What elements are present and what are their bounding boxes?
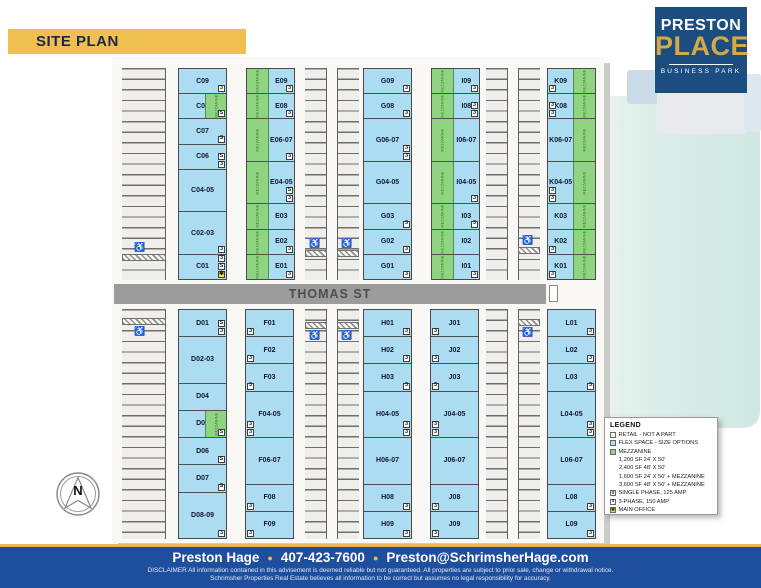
parking-strip (518, 309, 540, 539)
building-F: F013F023F033F04-0533F06-07F083F093 (245, 309, 294, 539)
handicap-icon: ♿ (134, 243, 145, 252)
phase-badge-3: 3 (549, 110, 556, 117)
unit-C09: C093 (179, 69, 226, 94)
phase-badge-S: S (218, 429, 225, 436)
unit-E01: MEZZANINEE013 (247, 255, 294, 279)
phase-badge-3: 3 (247, 383, 254, 390)
unit-L08: L083 (548, 485, 595, 512)
unit-floor: K03 (548, 204, 573, 228)
phase-badge-3: 3 (432, 429, 439, 436)
phase-badge-3: 3 (403, 271, 410, 278)
phase-badge-3: 3 (403, 328, 410, 335)
unit-label: K08 (554, 103, 567, 110)
phase-badge-3: 3 (403, 429, 410, 436)
mezzanine-area: MEZZANINE (432, 94, 454, 118)
unit-floor: E03 (269, 204, 294, 228)
legend-label: 1,600 SF 24' X 50' + MEZZANINE (619, 474, 705, 480)
legend-item: 1,200 SF 24' X 50' (610, 456, 712, 464)
unit-K01: K01MEZZANINE3 (548, 255, 595, 279)
unit-floor: G04-05 (364, 162, 411, 203)
mezzanine-area: MEZZANINE (432, 69, 454, 93)
unit-label: K06-07 (549, 137, 572, 144)
unit-I02: MEZZANINEI02 (432, 230, 479, 255)
unit-I03: MEZZANINEI033 (432, 204, 479, 229)
mezzanine-label: MEZZANINE (255, 70, 259, 93)
unit-H01: H013 (364, 310, 411, 337)
unit-label: I08 (461, 103, 471, 110)
contact-row: Preston Hage ● 407-423-7600 ● Preston@Sc… (0, 550, 761, 565)
unit-F03: F033 (246, 364, 293, 391)
unit-label: K09 (554, 78, 567, 85)
crosswalk-hatch (518, 319, 540, 326)
mezzanine-area: MEZZANINE (247, 69, 269, 93)
unit-floor: F06-07 (246, 438, 293, 483)
mezzanine-area: MEZZANINE (573, 255, 595, 279)
unit-floor: I06-07 (454, 119, 479, 160)
main-office-star: ✱ (218, 271, 225, 278)
mezzanine-area: MEZZANINE (247, 204, 269, 228)
phase-badge-3: 3 (247, 355, 254, 362)
unit-D01: D01S3 (179, 310, 226, 337)
unit-L04-05: L04-0533 (548, 392, 595, 438)
mezzanine-label: MEZZANINE (255, 95, 259, 118)
mezzanine-label: MEZZANINE (440, 230, 444, 253)
unit-I01: MEZZANINEI013 (432, 255, 479, 279)
mezzanine-area: MEZZANINE (432, 119, 454, 160)
unit-label: L03 (565, 374, 577, 381)
unit-H09: H093 (364, 512, 411, 538)
unit-label: C01 (196, 263, 209, 270)
unit-label: H03 (381, 374, 394, 381)
building-E: MEZZANINEE093MEZZANINEE083MEZZANINEE06-0… (246, 68, 295, 280)
legend-label: 2,400 SF 48' X 50' (619, 465, 665, 471)
mezzanine-label: MEZZANINE (583, 230, 587, 253)
phase-badge-3: 3 (432, 421, 439, 428)
crosswalk-hatch (305, 322, 327, 329)
unit-label: H02 (381, 347, 394, 354)
unit-label: G09 (381, 78, 394, 85)
unit-label: L06-07 (560, 457, 582, 464)
unit-K06-07: K06-07MEZZANINE (548, 119, 595, 161)
unit-label: E08 (275, 103, 287, 110)
unit-F09: F093 (246, 512, 293, 538)
legend-swatch-flex (610, 440, 616, 446)
unit-label: C07 (196, 128, 209, 135)
unit-C02-03: C02-033 (179, 212, 226, 254)
unit-K09: K09MEZZANINE3 (548, 69, 595, 94)
unit-L06-07: L06-07 (548, 438, 595, 484)
unit-label: L01 (565, 320, 577, 327)
unit-E03: MEZZANINEE03 (247, 204, 294, 229)
phase-badge-S: S (218, 320, 225, 327)
legend-item: SSINGLE PHASE, 125 AMP (610, 489, 712, 497)
unit-label: F02 (263, 347, 275, 354)
mezzanine-label: MEZZANINE (583, 95, 587, 118)
unit-E04-05: MEZZANINEE04-05S3 (247, 162, 294, 204)
legend-item: 33-PHASE, 150 AMP (610, 497, 712, 505)
phase-badge-3: 3 (286, 271, 293, 278)
logo-divider (669, 64, 733, 65)
phase-badge-3: 3 (432, 530, 439, 537)
legend-item: FLEX SPACE - SIZE OPTIONS (610, 439, 712, 447)
unit-label: D01 (196, 320, 209, 327)
unit-I06-07: MEZZANINEI06-07 (432, 119, 479, 161)
building-D: D01S3D02-03D04D05MEZZANINESD06SD07SD08-0… (178, 309, 227, 539)
mezzanine-label: MEZZANINE (440, 255, 444, 278)
phase-badge-3: 3 (403, 503, 410, 510)
parking-strip (337, 309, 359, 539)
unit-label: E04-05 (270, 179, 293, 186)
unit-C07: C07S (179, 119, 226, 144)
phase-badge-3: 3 (403, 145, 410, 152)
unit-label: K04-05 (549, 179, 572, 186)
unit-label: E01 (275, 263, 287, 270)
legend-label: FLEX SPACE - SIZE OPTIONS (619, 440, 699, 446)
unit-D08-09: D08-093 (179, 493, 226, 538)
mezzanine-area: MEZZANINE (432, 255, 454, 279)
mezzanine-area: MEZZANINE (573, 94, 595, 118)
unit-I09: MEZZANINEI093 (432, 69, 479, 94)
phase-badge-3: 3 (218, 255, 225, 262)
unit-D07: D07S (179, 465, 226, 492)
phase-badge-S: S (218, 484, 225, 491)
mezzanine-area: MEZZANINE (573, 162, 595, 203)
unit-I04-05: MEZZANINEI04-053 (432, 162, 479, 204)
phase-badge-3: 3 (432, 328, 439, 335)
parking-strip (305, 68, 327, 280)
unit-C01: C013S✱ (179, 255, 226, 279)
unit-K04-05: K04-05MEZZANINE33 (548, 162, 595, 204)
parking-strip (486, 309, 508, 539)
legend-label: 3,600 SF 48' X 50' + MEZZANINE (619, 482, 705, 488)
mezzanine-label: MEZZANINE (440, 129, 444, 152)
unit-L03: L033 (548, 364, 595, 391)
unit-label: I02 (461, 238, 471, 245)
legend-label: RETAIL - NOT A PART (619, 432, 676, 438)
unit-label: C09 (196, 78, 209, 85)
mezzanine-area: MEZZANINE (573, 119, 595, 160)
unit-H04-05: H04-0533 (364, 392, 411, 438)
unit-H03: H033 (364, 364, 411, 391)
mezzanine-label: MEZZANINE (583, 70, 587, 93)
unit-J02: J023 (431, 337, 478, 364)
unit-label: G03 (381, 213, 394, 220)
unit-E08: MEZZANINEE083 (247, 94, 294, 119)
street-label: THOMAS ST (289, 287, 372, 301)
legend-item: MEZZANINE (610, 448, 712, 456)
unit-G04-05: G04-05 (364, 162, 411, 204)
unit-label: I01 (461, 263, 471, 270)
legend-item: RETAIL - NOT A PART (610, 431, 712, 439)
unit-K08: K08MEZZANINE33 (548, 94, 595, 119)
mezzanine-area: MEZZANINE (247, 230, 269, 254)
unit-G06-07: G06-0733 (364, 119, 411, 161)
phase-badge-3: 3 (403, 85, 410, 92)
legend-label: 1,200 SF 24' X 50' (619, 457, 665, 463)
unit-C06: C06S3 (179, 145, 226, 170)
legend-item: 2,400 SF 48' X 50' (610, 464, 712, 472)
bullet-icon: ● (267, 553, 272, 563)
unit-label: C02-03 (191, 230, 214, 237)
unit-label: F09 (263, 521, 275, 528)
unit-D04: D04 (179, 384, 226, 411)
unit-J06-07: J06-07 (431, 438, 478, 484)
mezzanine-label: MEZZANINE (583, 205, 587, 228)
phase-badge-3: 3 (587, 328, 594, 335)
handicap-icon: ♿ (341, 239, 352, 248)
legend-swatch-3: 3 (610, 499, 616, 505)
legend-swatch-mezz (610, 449, 616, 455)
page-title: SITE PLAN (36, 33, 119, 50)
unit-label: C06 (196, 153, 209, 160)
unit-label: K03 (554, 213, 567, 220)
mezzanine-area: MEZZANINE (247, 162, 269, 203)
unit-floor: H06-07 (364, 438, 411, 483)
unit-H06-07: H06-07 (364, 438, 411, 484)
phase-badge-3: 3 (218, 328, 225, 335)
unit-F02: F023 (246, 337, 293, 364)
unit-K03: K03MEZZANINE (548, 204, 595, 229)
legend-swatch-retail (610, 432, 616, 438)
mezzanine-area: MEZZANINE (247, 119, 269, 160)
unit-label: F06-07 (258, 457, 280, 464)
phase-badge-3: 3 (403, 246, 410, 253)
unit-label: H04-05 (376, 411, 399, 418)
unit-label: J09 (449, 521, 461, 528)
unit-G09: G093 (364, 69, 411, 94)
unit-label: E06-07 (270, 137, 293, 144)
unit-label: H01 (381, 320, 394, 327)
unit-E09: MEZZANINEE093 (247, 69, 294, 94)
unit-label: E03 (275, 213, 287, 220)
unit-label: E09 (275, 78, 287, 85)
unit-floor: D02-03 (179, 337, 226, 382)
thomas-street: THOMAS ST (114, 284, 546, 304)
unit-label: J03 (449, 374, 461, 381)
crosswalk-hatch (518, 247, 540, 254)
unit-floor: C04-05 (179, 170, 226, 211)
phase-badge-3: 3 (403, 221, 410, 228)
mezzanine-label: MEZZANINE (440, 205, 444, 228)
unit-label: J08 (449, 494, 461, 501)
crosswalk-hatch (122, 254, 166, 261)
phase-badge-3: 3 (471, 110, 478, 117)
handicap-icon: ♿ (341, 331, 352, 340)
logo-line2: PLACE (655, 34, 747, 60)
legend-label: 3-PHASE, 150 AMP (619, 499, 670, 505)
unit-label: J01 (449, 320, 461, 327)
phase-badge-3: 3 (549, 195, 556, 202)
building-C: C093C08MEZZANINESC07SC06S3C04-05C02-033C… (178, 68, 227, 280)
parking-strip (337, 68, 359, 280)
mezzanine-label: MEZZANINE (583, 255, 587, 278)
phase-badge-3: 3 (432, 503, 439, 510)
phase-badge-3: 3 (247, 530, 254, 537)
phase-badge-3: 3 (471, 271, 478, 278)
unit-label: G02 (381, 238, 394, 245)
phase-badge-3: 3 (432, 383, 439, 390)
unit-label: K02 (554, 238, 567, 245)
mezzanine-label: MEZZANINE (583, 171, 587, 194)
unit-label: K01 (554, 263, 567, 270)
unit-F08: F083 (246, 485, 293, 512)
legend-item: ✱MAIN OFFICE (610, 506, 712, 514)
crosswalk-hatch (337, 322, 359, 329)
phase-badge-3: 3 (471, 102, 478, 109)
phase-badge-3: 3 (247, 328, 254, 335)
phase-badge-3: 3 (432, 355, 439, 362)
phase-badge-3: 3 (471, 221, 478, 228)
unit-G03: G033 (364, 204, 411, 229)
mezzanine-area: MEZZANINE (573, 230, 595, 254)
phase-badge-3: 3 (218, 246, 225, 253)
unit-J03: J033 (431, 364, 478, 391)
unit-F01: F013 (246, 310, 293, 337)
contact-email[interactable]: Preston@SchrimsherHage.com (386, 550, 588, 565)
unit-J09: J093 (431, 512, 478, 538)
logo-line3: BUSINESS PARK (655, 68, 747, 75)
mezzanine-area: MEZZANINE (432, 162, 454, 203)
phase-badge-3: 3 (286, 110, 293, 117)
disclaimer-line2: Schrimsher Properties Real Estate believ… (0, 575, 761, 583)
unit-H02: H023 (364, 337, 411, 364)
crosswalk-hatch (305, 250, 327, 257)
unit-label: E02 (275, 238, 287, 245)
unit-floor: L06-07 (548, 438, 595, 483)
mezzanine-area: MEZZANINE (247, 255, 269, 279)
unit-J08: J083 (431, 485, 478, 512)
phase-badge-S: S (218, 263, 225, 270)
phase-badge-3: 3 (549, 271, 556, 278)
unit-label: F04-05 (258, 411, 280, 418)
unit-E02: MEZZANINEE023 (247, 230, 294, 255)
phase-badge-3: 3 (218, 161, 225, 168)
legend-label: MEZZANINE (619, 449, 652, 455)
mezzanine-label: MEZZANINE (440, 95, 444, 118)
unit-label: D07 (196, 475, 209, 482)
handicap-icon: ♿ (134, 327, 145, 336)
background-gray-square (657, 92, 746, 134)
mezzanine-area: MEZZANINE (432, 204, 454, 228)
unit-label: D04 (196, 393, 209, 400)
mezzanine-label: MEZZANINE (255, 171, 259, 194)
building-I: MEZZANINEI093MEZZANINEI0833MEZZANINEI06-… (431, 68, 480, 280)
phase-badge-3: 3 (286, 153, 293, 160)
main-office-star: ✱ (610, 507, 616, 513)
unit-label: L04-05 (560, 411, 582, 418)
building-H: H013H023H033H04-0533H06-07H083H093 (363, 309, 412, 539)
unit-L09: L093 (548, 512, 595, 538)
unit-label: D06 (196, 448, 209, 455)
mezzanine-area: MEZZANINE (573, 69, 595, 93)
page-title-banner: SITE PLAN (8, 29, 246, 54)
phase-badge-3: 3 (471, 195, 478, 202)
mezzanine-label: MEZZANINE (583, 129, 587, 152)
contact-phone[interactable]: 407-423-7600 (281, 550, 365, 565)
mezzanine-label: MEZZANINE (440, 171, 444, 194)
unit-label: G04-05 (376, 179, 399, 186)
handicap-icon: ♿ (522, 236, 533, 245)
phase-badge-3: 3 (587, 530, 594, 537)
unit-floor: J06-07 (431, 438, 478, 483)
phase-badge-S: S (218, 136, 225, 143)
unit-floor: I02 (454, 230, 479, 254)
unit-label: C04-05 (191, 187, 214, 194)
phase-badge-3: 3 (549, 102, 556, 109)
unit-H08: H083 (364, 485, 411, 512)
phase-badge-S: S (218, 456, 225, 463)
unit-label: H08 (381, 494, 394, 501)
building-L: L013L023L033L04-0533L06-07L083L093 (547, 309, 596, 539)
handicap-icon: ♿ (522, 328, 533, 337)
crosswalk-hatch (122, 318, 166, 325)
phase-badge-3: 3 (587, 429, 594, 436)
building-G: G093G083G06-0733G04-05G033G023G013 (363, 68, 412, 280)
mezzanine-label: MEZZANINE (255, 230, 259, 253)
unit-label: G08 (381, 103, 394, 110)
mezzanine-area: MEZZANINE (432, 230, 454, 254)
unit-label: I04-05 (456, 179, 476, 186)
unit-G02: G023 (364, 230, 411, 255)
phase-badge-3: 3 (403, 153, 410, 160)
phase-badge-3: 3 (549, 85, 556, 92)
building-K: K09MEZZANINE3K08MEZZANINE33K06-07MEZZANI… (547, 68, 596, 280)
phase-badge-3: 3 (286, 85, 293, 92)
phase-badge-3: 3 (587, 421, 594, 428)
unit-floor: K06-07 (548, 119, 573, 160)
unit-L01: L013 (548, 310, 595, 337)
phase-badge-3: 3 (549, 246, 556, 253)
unit-label: H09 (381, 521, 394, 528)
unit-label: I03 (461, 213, 471, 220)
crosswalk-hatch (337, 250, 359, 257)
phase-badge-3: 3 (403, 421, 410, 428)
footer: Preston Hage ● 407-423-7600 ● Preston@Sc… (0, 547, 761, 588)
unit-label: L08 (565, 494, 577, 501)
unit-E06-07: MEZZANINEE06-073 (247, 119, 294, 161)
mezzanine-label: MEZZANINE (255, 129, 259, 152)
contact-name: Preston Hage (172, 550, 259, 565)
logo: PRESTON PLACE BUSINESS PARK (655, 7, 747, 93)
unit-F04-05: F04-0533 (246, 392, 293, 438)
phase-badge-3: 3 (587, 355, 594, 362)
handicap-icon: ♿ (309, 331, 320, 340)
unit-J01: J013 (431, 310, 478, 337)
legend-label: MAIN OFFICE (619, 507, 656, 513)
phase-badge-3: 3 (403, 110, 410, 117)
unit-label: J02 (449, 347, 461, 354)
compass-north-label: N (73, 483, 82, 498)
compass-icon: N (55, 471, 101, 517)
unit-J04-05: J04-0533 (431, 392, 478, 438)
building-J: J013J023J033J04-0533J06-07J083J093 (430, 309, 479, 539)
unit-L02: L023 (548, 337, 595, 364)
unit-label: I06-07 (456, 137, 476, 144)
unit-F06-07: F06-07 (246, 438, 293, 484)
unit-label: F08 (263, 494, 275, 501)
parking-strip (122, 309, 166, 539)
unit-I08: MEZZANINEI0833 (432, 94, 479, 119)
phase-badge-3: 3 (471, 85, 478, 92)
unit-label: D02-03 (191, 356, 214, 363)
unit-label: G01 (381, 263, 394, 270)
phase-badge-3: 3 (247, 503, 254, 510)
mezzanine-area: MEZZANINE (573, 204, 595, 228)
disclaimer: DISCLAIMER All information contained in … (0, 567, 761, 583)
compass: N (55, 471, 101, 517)
phase-badge-3: 3 (549, 187, 556, 194)
unit-D06: D06S (179, 438, 226, 465)
